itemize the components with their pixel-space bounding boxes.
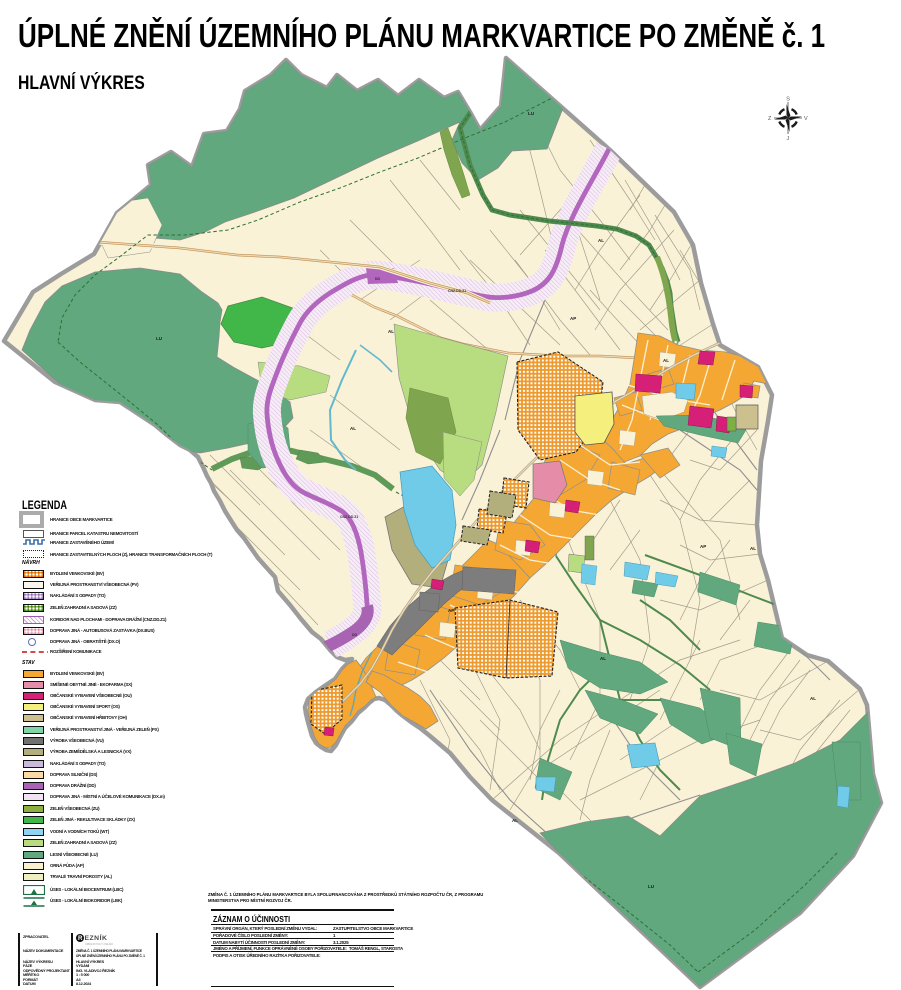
svg-text:AL: AL: [512, 818, 518, 823]
svg-text:AL: AL: [350, 426, 356, 431]
svg-text:AL: AL: [750, 546, 756, 551]
svg-text:CNZ.DD.Z1: CNZ.DD.Z1: [448, 289, 466, 293]
svg-text:DD: DD: [352, 633, 358, 637]
svg-text:AL: AL: [388, 329, 394, 334]
svg-text:LU: LU: [648, 884, 654, 889]
svg-text:AL: AL: [810, 696, 816, 701]
svg-text:AL: AL: [598, 238, 604, 243]
svg-text:Z: Z: [768, 116, 772, 122]
svg-text:S: S: [786, 97, 790, 103]
svg-text:AL: AL: [600, 656, 606, 661]
svg-text:CNZ.DD.Z1: CNZ.DD.Z1: [340, 515, 358, 519]
svg-text:V: V: [804, 116, 808, 122]
svg-text:AP: AP: [570, 316, 576, 321]
svg-text:LU: LU: [528, 111, 534, 116]
svg-text:AL: AL: [663, 358, 669, 363]
svg-text:J: J: [787, 136, 790, 142]
svg-text:AP: AP: [448, 608, 454, 613]
svg-text:AP: AP: [700, 544, 706, 549]
svg-text:DD: DD: [375, 277, 381, 281]
svg-text:LU: LU: [156, 336, 162, 341]
